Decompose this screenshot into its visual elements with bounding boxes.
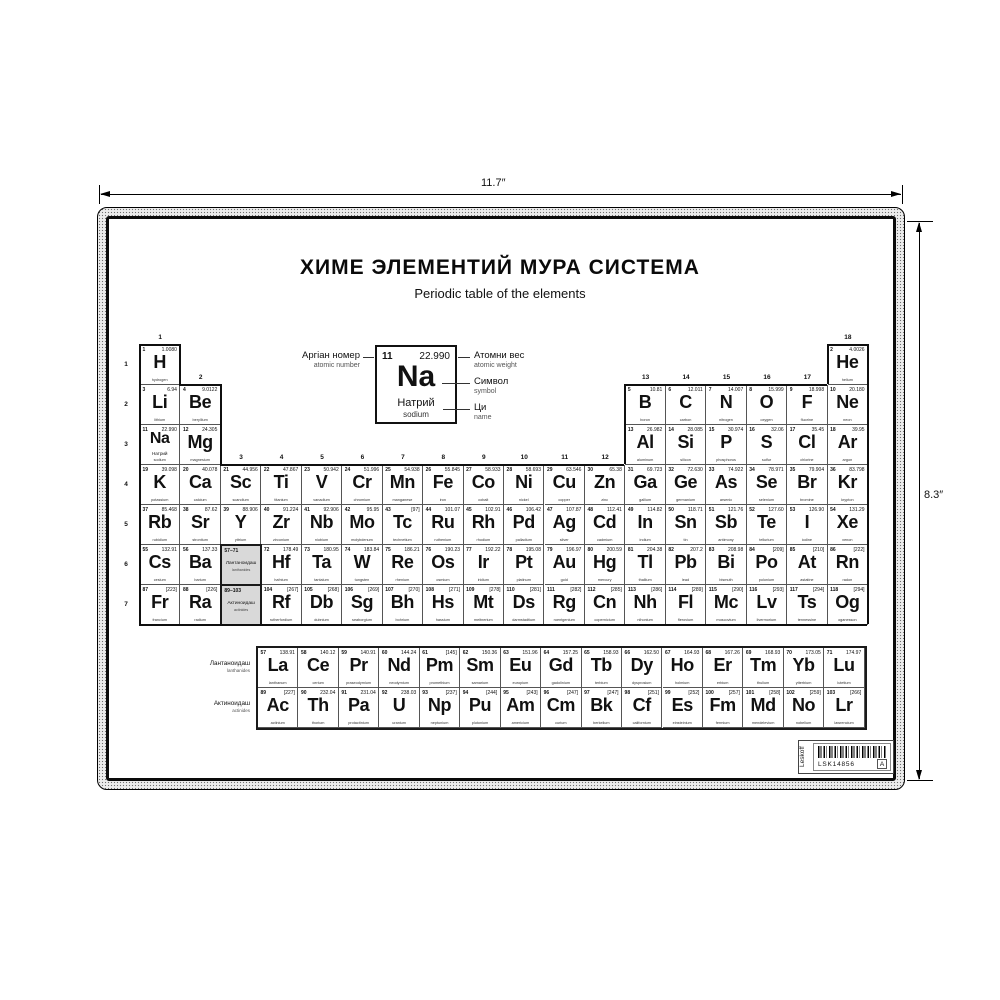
element-name: bismuth (706, 578, 745, 582)
element-symbol: Y (221, 512, 260, 533)
element-cell-Ne: 1020.180Neneon (828, 385, 868, 425)
element-name: platinum (504, 578, 543, 582)
dimension-tick-right-bottom (907, 780, 933, 781)
element-symbol: Ga (625, 472, 664, 493)
element-name: iodine (787, 538, 826, 542)
placeholder-label-en: lanthanides (222, 568, 260, 572)
element-name: astatine (787, 578, 826, 582)
element-name: sulfur (747, 458, 786, 462)
element-cell-Nh: 113[286]Nhnihonium (625, 585, 665, 625)
element-symbol: Be (180, 392, 219, 413)
element-cell-Og: 118[294]Ogoganesson (828, 585, 868, 625)
table-outline-segment-4 (827, 344, 867, 346)
element-name: mercury (585, 578, 624, 582)
table-outline-segment-5 (179, 344, 181, 384)
element-symbol: Bi (706, 552, 745, 573)
element-symbol: Og (828, 592, 867, 613)
element-name: nitrogen (706, 418, 745, 422)
element-cell-Co: 2758.933Cocobalt (464, 465, 504, 505)
element-cell-Ir: 77192.22Iriridium (464, 545, 504, 585)
fblock-row-label: Лантаноидашlanthanides (130, 660, 250, 673)
element-name: dubnium (302, 618, 341, 622)
element-cell-K: 1939.098Kpotassium (140, 465, 180, 505)
element-name: molybdenum (342, 538, 381, 542)
fblock-label-en: actinides (130, 708, 250, 714)
element-cell-Ti: 2247.867Tititanium (261, 465, 301, 505)
group-label-6: 6 (342, 454, 382, 461)
element-cell-Sg: 106[269]Sgseaborgium (342, 585, 382, 625)
element-symbol: Cu (545, 472, 584, 493)
element-name: magnesium (180, 458, 219, 462)
element-cell-Nb: 4192.906Nbniobium (302, 505, 342, 545)
group-label-11: 11 (545, 454, 585, 461)
element-name: aluminum (625, 458, 664, 462)
element-symbol: Kr (828, 472, 867, 493)
table-outline-segment-10 (624, 384, 626, 464)
group-label-12: 12 (585, 454, 625, 461)
element-name: barium (180, 578, 219, 582)
element-name: polonium (747, 578, 786, 582)
callout-line-atomic-weight (458, 357, 470, 358)
element-symbol: He (828, 352, 867, 373)
element-name: nihonium (625, 618, 664, 622)
element-symbol: Mo (342, 512, 381, 533)
element-symbol: As (706, 472, 745, 493)
element-cell-Cr: 2451.996Crchromium (342, 465, 382, 505)
element-name: rhodium (464, 538, 503, 542)
placeholder-cell-57–71: 57–71Лантаноидашlanthanides (220, 544, 262, 586)
corner-mark: A (877, 759, 887, 769)
period-label-4: 4 (118, 481, 134, 488)
element-symbol: Zr (261, 512, 300, 533)
element-symbol: Tc (383, 512, 422, 533)
element-cell-Lv: 116[293]Lvlivermorium (747, 585, 787, 625)
element-name: titanium (261, 498, 300, 502)
element-cell-F: 918.998Ffluorine (787, 385, 827, 425)
element-symbol: Ni (504, 472, 543, 493)
element-symbol: Po (747, 552, 786, 573)
element-symbol: B (625, 392, 664, 413)
table-outline-segment-8 (220, 464, 625, 466)
element-name: hydrogen (140, 378, 179, 382)
element-name: seaborgium (342, 618, 381, 622)
element-name: iron (423, 498, 462, 502)
element-cell-Br: 3579.904Brbromine (787, 465, 827, 505)
element-symbol: Ca (180, 472, 219, 493)
element-name: silver (545, 538, 584, 542)
element-name: neon (828, 418, 867, 422)
element-symbol: C (666, 392, 705, 413)
element-cell-Ts: 117[294]Tstennessine (787, 585, 827, 625)
legend-label-atomic-weight: Атомни вес atomic weight (474, 351, 584, 370)
element-name: hassium (423, 618, 462, 622)
element-cell-Cl: 1735.45Clchlorine (787, 425, 827, 465)
arrowhead-right-icon (891, 191, 901, 197)
element-cell-Ca: 2040.078Cacalcium (180, 465, 220, 505)
element-cell-Rb: 3785.468Rbrubidium (140, 505, 180, 545)
group-label-13: 13 (625, 374, 665, 381)
element-cell-Os: 76190.23Ososmium (423, 545, 463, 585)
element-name: hafnium (261, 578, 300, 582)
element-cell-W: 74183.84Wtungsten (342, 545, 382, 585)
element-name: thallium (625, 578, 664, 582)
dimension-line-height (919, 223, 920, 779)
element-symbol: Sc (221, 472, 260, 493)
element-cell-Ds: 110[281]Dsdarmstadtium (504, 585, 544, 625)
element-name: arsenic (706, 498, 745, 502)
period-label-7: 7 (118, 601, 134, 608)
fblock-label-local: Лантаноидаш (130, 660, 250, 668)
element-symbol: Fl (666, 592, 705, 613)
fblock-row-label: Актиноидашactinides (130, 700, 250, 713)
placeholder-label-en: actinides (222, 608, 260, 612)
element-symbol: Hs (423, 592, 462, 613)
element-symbol: Cd (585, 512, 624, 533)
fblock-label-en: lanthanides (130, 668, 250, 674)
element-cell-Rn: 86[222]Rnradon (828, 545, 868, 585)
element-symbol: Ba (180, 552, 219, 573)
element-name: nickel (504, 498, 543, 502)
element-symbol: Pt (504, 552, 543, 573)
element-name: tin (666, 538, 705, 542)
element-cell-Bi: 83208.98Bibismuth (706, 545, 746, 585)
element-symbol: Ti (261, 472, 300, 493)
element-symbol: Te (747, 512, 786, 533)
element-cell-H: 11.0080Hhydrogen (140, 345, 180, 385)
element-symbol: Nh (625, 592, 664, 613)
element-cell-Ag: 47107.87Agsilver (545, 505, 585, 545)
element-name: radium (180, 618, 219, 622)
legend-label-name-en: name (474, 414, 584, 422)
element-name: cadmium (585, 538, 624, 542)
element-symbol: At (787, 552, 826, 573)
element-cell-Sc: 2144.956Scscandium (221, 465, 261, 505)
element-name: cobalt (464, 498, 503, 502)
element-symbol: Ir (464, 552, 503, 573)
element-name: xenon (828, 538, 867, 542)
element-cell-Zn: 3065.38Znzinc (585, 465, 625, 505)
element-symbol: H (140, 352, 179, 373)
element-cell-V: 2350.942Vvanadium (302, 465, 342, 505)
dimension-line-width (101, 194, 901, 195)
element-symbol: S (747, 432, 786, 453)
element-cell-In: 49114.82Inindium (625, 505, 665, 545)
element-symbol: Zn (585, 472, 624, 493)
element-symbol: Fr (140, 592, 179, 613)
element-cell-Cd: 48112.41Cdcadmium (585, 505, 625, 545)
element-name: osmium (423, 578, 462, 582)
element-name: germanium (666, 498, 705, 502)
element-name: rhenium (383, 578, 422, 582)
period-label-2: 2 (118, 401, 134, 408)
period-label-3: 3 (118, 441, 134, 448)
element-name: zinc (585, 498, 624, 502)
table-outline-segment-3 (867, 344, 869, 624)
element-name: gold (545, 578, 584, 582)
element-name: fluorine (787, 418, 826, 422)
element-cell-Rf: 104[267]Rfrutherfordium (261, 585, 301, 625)
element-symbol: Rh (464, 512, 503, 533)
period-label-1: 1 (118, 361, 134, 368)
element-symbol: W (342, 552, 381, 573)
element-name: meitnerium (464, 618, 503, 622)
element-cell-Ni: 2858.693Ninickel (504, 465, 544, 505)
element-name-local: Натрий (140, 451, 179, 456)
element-cell-Hs: 108[271]Hshassium (423, 585, 463, 625)
element-name: ruthenium (423, 538, 462, 542)
fblock-outline (256, 646, 867, 730)
element-name: rubidium (140, 538, 179, 542)
table-outline-segment-9 (624, 384, 826, 386)
group-label-1: 1 (140, 334, 180, 341)
legend-label-atomic-number: Аргіан номер atomic number (240, 351, 360, 370)
arrowhead-left-icon (100, 191, 110, 197)
fblock-label-local: Актиноидаш (130, 700, 250, 708)
element-name: palladium (504, 538, 543, 542)
element-symbol: Hf (261, 552, 300, 573)
element-name: chromium (342, 498, 381, 502)
element-cell-Na: 1122.990NaНатрийsodium (140, 425, 180, 465)
legend-label-symbol-local: Символ (474, 377, 584, 388)
element-symbol: Pb (666, 552, 705, 573)
element-name: potassium (140, 498, 179, 502)
element-symbol: Ne (828, 392, 867, 413)
element-symbol: Ag (545, 512, 584, 533)
element-symbol: Ru (423, 512, 462, 533)
element-name: lithium (140, 418, 179, 422)
element-symbol: Sb (706, 512, 745, 533)
element-cell-Mn: 2554.938Mnmanganese (383, 465, 423, 505)
legend-label-name-local: Ци (474, 403, 584, 414)
element-cell-Mo: 4295.95Momolybdenum (342, 505, 382, 545)
poster-title: ХИМЕ ЭЛЕМЕНТИЙ МУРА СИСТЕМА (150, 256, 850, 280)
element-name: selenium (747, 498, 786, 502)
table-outline-segment-11 (827, 344, 829, 384)
element-symbol: Au (545, 552, 584, 573)
element-symbol: Cn (585, 592, 624, 613)
element-symbol: P (706, 432, 745, 453)
element-symbol: Al (625, 432, 664, 453)
element-symbol: Ds (504, 592, 543, 613)
dimension-tick-top-right (902, 185, 903, 204)
element-cell-Hg: 80200.59Hgmercury (585, 545, 625, 585)
group-label-7: 7 (383, 454, 423, 461)
element-cell-Po: 84[209]Popolonium (747, 545, 787, 585)
callout-line-symbol (442, 383, 470, 384)
element-cell-Y: 3988.906Yyttrium (221, 505, 261, 545)
element-cell-As: 3374.922Asarsenic (706, 465, 746, 505)
element-name: flerovium (666, 618, 705, 622)
element-cell-Ge: 3272.630Gegermanium (666, 465, 706, 505)
element-cell-Tc: 43[97]Tctechnetium (383, 505, 423, 545)
element-name: krypton (828, 498, 867, 502)
placeholder-range: 89–103 (224, 588, 241, 594)
group-label-10: 10 (504, 454, 544, 461)
table-outline-segment-7 (220, 384, 222, 464)
element-cell-Sr: 3887.62Srstrontium (180, 505, 220, 545)
element-symbol: Rn (828, 552, 867, 573)
element-name: yttrium (221, 538, 260, 542)
group-label-17: 17 (787, 374, 827, 381)
element-name: copper (545, 498, 584, 502)
product-code: LSK14856 (818, 761, 855, 768)
placeholder-range: 57–71 (224, 548, 238, 554)
element-name: scandium (221, 498, 260, 502)
element-cell-C: 612.011Ccarbon (666, 385, 706, 425)
element-name: gallium (625, 498, 664, 502)
element-name: zirconium (261, 538, 300, 542)
element-cell-Sb: 51121.76Sbantimony (706, 505, 746, 545)
element-symbol: Co (464, 472, 503, 493)
element-cell-Si: 1428.085Sisilicon (666, 425, 706, 465)
group-label-9: 9 (464, 454, 504, 461)
element-name: cesium (140, 578, 179, 582)
element-cell-Mc: 115[290]Mcmoscovium (706, 585, 746, 625)
element-symbol: Ge (666, 472, 705, 493)
element-symbol: Mg (180, 432, 219, 453)
element-name: tantalum (302, 578, 341, 582)
placeholder-label-local: Актиноидаш (222, 601, 260, 606)
element-symbol: Rg (545, 592, 584, 613)
element-cell-Hf: 72178.49Hfhafnium (261, 545, 301, 585)
element-cell-N: 714.007Nnitrogen (706, 385, 746, 425)
placeholder-label-local: Лантаноидаш (222, 561, 260, 566)
element-symbol: K (140, 472, 179, 493)
group-label-15: 15 (706, 374, 746, 381)
element-symbol: Ar (828, 432, 867, 453)
element-symbol: Sn (666, 512, 705, 533)
element-symbol: Cl (787, 432, 826, 453)
element-name: lead (666, 578, 705, 582)
element-cell-Se: 3478.971Seselenium (747, 465, 787, 505)
element-name: livermorium (747, 618, 786, 622)
element-cell-Ba: 56137.33Babarium (180, 545, 220, 585)
element-name: oganesson (828, 618, 867, 622)
table-outline-segment-6 (179, 384, 219, 386)
element-symbol: Mt (464, 592, 503, 613)
element-symbol: In (625, 512, 664, 533)
group-label-14: 14 (666, 374, 706, 381)
element-cell-Ra: 88[226]Raradium (180, 585, 220, 625)
element-cell-Ar: 1839.95Arargon (828, 425, 868, 465)
element-name: moscovium (706, 618, 745, 622)
element-cell-Ga: 3169.723Gagallium (625, 465, 665, 505)
element-name: tellurium (747, 538, 786, 542)
element-name: tennessine (787, 618, 826, 622)
element-symbol: Li (140, 392, 179, 413)
element-cell-Be: 49.0122Beberyllium (180, 385, 220, 425)
element-name: phosphorus (706, 458, 745, 462)
element-name: francium (140, 618, 179, 622)
element-cell-O: 815.999Ooxygen (747, 385, 787, 425)
element-symbol: Lv (747, 592, 786, 613)
element-cell-I: 53126.90Iiodine (787, 505, 827, 545)
element-cell-He: 24.0026Hehelium (828, 345, 868, 385)
element-name: manganese (383, 498, 422, 502)
element-cell-Pt: 78195.08Ptplatinum (504, 545, 544, 585)
table-outline-segment-2 (139, 624, 867, 626)
element-symbol: Db (302, 592, 341, 613)
element-cell-Mt: 109[278]Mtmeitnerium (464, 585, 504, 625)
table-outline-segment-1 (139, 344, 141, 624)
element-cell-Fe: 2655.845Feiron (423, 465, 463, 505)
element-cell-Rg: 111[282]Rgroentgenium (545, 585, 585, 625)
legend-label-name: Ци name (474, 403, 584, 422)
period-label-5: 5 (118, 521, 134, 528)
element-cell-Re: 75186.21Rerhenium (383, 545, 423, 585)
element-cell-Fr: 87[223]Frfrancium (140, 585, 180, 625)
element-symbol: Na (140, 430, 179, 448)
legend-symbol-value: Na (377, 360, 455, 394)
element-name: darmstadtium (504, 618, 543, 622)
element-symbol: Cs (140, 552, 179, 573)
legend-label-atomic-weight-en: atomic weight (474, 362, 584, 370)
group-label-4: 4 (261, 454, 301, 461)
element-cell-Db: 105[268]Dbdubnium (302, 585, 342, 625)
element-symbol: Ra (180, 592, 219, 613)
element-symbol: Os (423, 552, 462, 573)
element-symbol: Cr (342, 472, 381, 493)
element-cell-Rh: 45102.91Rhrhodium (464, 505, 504, 545)
element-symbol: Hg (585, 552, 624, 573)
element-name: antimony (706, 538, 745, 542)
table-outline-segment-0 (139, 344, 179, 346)
element-symbol: I (787, 512, 826, 533)
element-symbol: Se (747, 472, 786, 493)
group-label-2: 2 (180, 374, 220, 381)
legend-example-cell: 11 22.990 Na Натрий sodium (375, 345, 457, 424)
element-cell-Mg: 1224.305Mgmagnesium (180, 425, 220, 465)
legend-label-atomic-number-en: atomic number (240, 362, 360, 370)
element-symbol: Sg (342, 592, 381, 613)
width-dimension-label: 11.7″ (478, 177, 509, 189)
element-name: indium (625, 538, 664, 542)
element-name: roentgenium (545, 618, 584, 622)
legend-label-atomic-number-local: Аргіан номер (240, 351, 360, 362)
element-cell-B: 510.81Bboron (625, 385, 665, 425)
element-cell-Xe: 54131.29Xexenon (828, 505, 868, 545)
group-label-8: 8 (423, 454, 463, 461)
element-name: silicon (666, 458, 705, 462)
element-symbol: O (747, 392, 786, 413)
element-cell-Zr: 4091.224Zrzirconium (261, 505, 301, 545)
legend-label-atomic-weight-local: Атомни вес (474, 351, 584, 362)
element-symbol: N (706, 392, 745, 413)
element-symbol: Tl (625, 552, 664, 573)
element-cell-Li: 36.94Lilithium (140, 385, 180, 425)
element-cell-Cn: 112[285]Cncopernicium (585, 585, 625, 625)
poster-mockup-canvas: 11.7″ 8.3″ ХИМЕ ЭЛЕМЕНТИЙ МУРА СИСТЕМА P… (0, 0, 1000, 1000)
element-name: calcium (180, 498, 219, 502)
group-label-16: 16 (747, 374, 787, 381)
legend-name-local-value: Натрий (377, 397, 455, 409)
element-cell-Bh: 107[270]Bhbohrium (383, 585, 423, 625)
element-name: radon (828, 578, 867, 582)
element-name: iridium (464, 578, 503, 582)
element-cell-Sn: 50118.71Sntin (666, 505, 706, 545)
callout-line-atomic-number (363, 357, 374, 358)
element-symbol: V (302, 472, 341, 493)
element-cell-Al: 1326.982Alaluminum (625, 425, 665, 465)
legend-label-symbol: Символ symbol (474, 377, 584, 396)
element-cell-Tl: 81204.38Tlthallium (625, 545, 665, 585)
element-cell-P: 1530.974Pphosphorus (706, 425, 746, 465)
barcode (818, 746, 886, 758)
element-symbol: Xe (828, 512, 867, 533)
element-cell-Fl: 114[289]Flflerovium (666, 585, 706, 625)
element-cell-Te: 52127.60Tetellurium (747, 505, 787, 545)
element-symbol: Rb (140, 512, 179, 533)
